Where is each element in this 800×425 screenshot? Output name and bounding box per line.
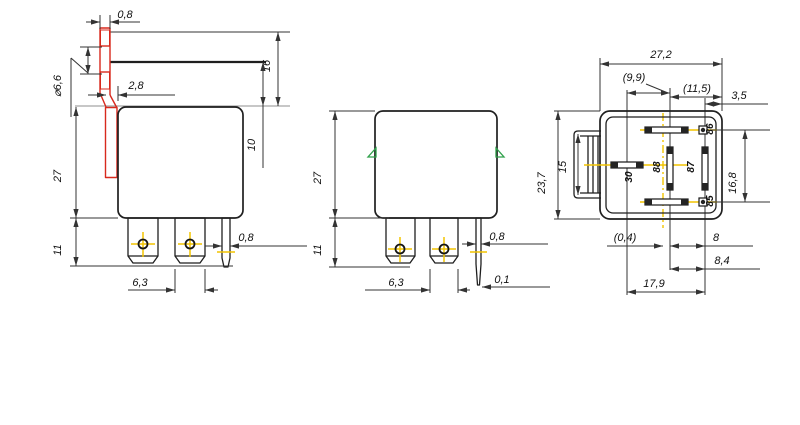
pin-87: 87 [686, 147, 709, 190]
dim-label-hole: ⌀6,6 [52, 74, 64, 97]
dim-84: 8,4 [670, 255, 760, 269]
relay-body-side [118, 107, 243, 218]
pin-85-label: 85 [705, 195, 716, 207]
relay-body-side2 [375, 111, 497, 218]
dim-label-27: 27 [312, 171, 324, 185]
dim-99: (9,9) [623, 72, 670, 93]
dim-label-11: 11 [312, 244, 324, 255]
dim-01-middle: 0,1 [482, 274, 550, 287]
dim-272: 27,2 [600, 49, 722, 64]
dim-168: 16,8 [712, 130, 770, 202]
dim-label-179: 17,9 [643, 278, 664, 290]
dim-label-8: 8 [713, 232, 720, 244]
dim-label-272: 27,2 [649, 49, 671, 61]
dim-label-01: 0,1 [494, 274, 509, 286]
dim-label-11: 11 [52, 244, 64, 255]
view-bottom: 86 85 30 88 87 [536, 49, 770, 295]
view-side-with-bracket: 0,8 16 10 2,8 ⌀6,6 [52, 9, 307, 293]
dim-label-63: 6,3 [132, 277, 148, 289]
dim-27-middle: 27 [312, 111, 375, 218]
dim-label-99: (9,9) [623, 72, 646, 84]
dim-label-15: 15 [557, 160, 569, 173]
dim-63-middle: 6,3 [365, 269, 470, 293]
dim-label-28: 2,8 [127, 80, 144, 92]
dim-label-168: 16,8 [727, 171, 739, 193]
dim-label-115: (11,5) [683, 83, 711, 95]
dim-8: 8 [670, 232, 753, 246]
dim-63-left: 6,3 [128, 269, 218, 293]
dim-27-left: 27 [52, 107, 76, 218]
drawing-svg: 0,8 16 10 2,8 ⌀6,6 [0, 0, 800, 425]
dim-10: 10 [246, 62, 263, 168]
dim-08-pin-left: 0,8 [205, 232, 307, 246]
dim-label-08: 0,8 [489, 231, 505, 243]
dim-179: 17,9 [627, 278, 705, 292]
dim-16: 16 [261, 32, 278, 106]
bracket-hatch-upper [101, 30, 110, 46]
dim-label-63: 6,3 [388, 277, 404, 289]
dim-label-08-pin: 0,8 [238, 232, 254, 244]
dim-28: 2,8 [88, 80, 175, 101]
dim-label-84: 8,4 [714, 255, 729, 267]
dim-15: 15 [557, 134, 578, 195]
relay-technical-drawing: 0,8 16 10 2,8 ⌀6,6 [0, 0, 800, 425]
bracket-hatch-lower [101, 72, 110, 89]
pin-88-label: 88 [652, 161, 663, 173]
pin-85: 85 [645, 195, 716, 207]
dim-11-middle: 11 [312, 218, 410, 267]
mounting-bracket [100, 28, 117, 178]
dim-bracket-thickness: 0,8 [86, 9, 140, 29]
pin-86-label: 86 [705, 123, 716, 135]
relay-pins-side2 [386, 218, 487, 285]
pin-87-label: 87 [686, 161, 697, 173]
relay-pins-side [128, 218, 235, 267]
dim-115: (11,5) [670, 83, 722, 97]
view-side-plain: 27 11 6,3 0,8 0,1 [312, 111, 550, 293]
dim-label-237: 23,7 [536, 171, 548, 194]
dim-label-04: (0,4) [614, 232, 637, 244]
bracket-clip [106, 108, 118, 178]
dim-label-08-top: 0,8 [117, 9, 133, 21]
dim-label-35: 3,5 [731, 90, 747, 102]
pin-30-label: 30 [624, 171, 635, 183]
dim-label-10: 10 [246, 138, 258, 151]
dim-04: (0,4) [607, 232, 663, 246]
dim-08-middle: 0,8 [462, 231, 548, 244]
pin-30: 30 [611, 162, 643, 183]
dim-label-27: 27 [52, 169, 64, 183]
pin-86: 86 [645, 123, 716, 135]
thin-pin [222, 218, 230, 267]
